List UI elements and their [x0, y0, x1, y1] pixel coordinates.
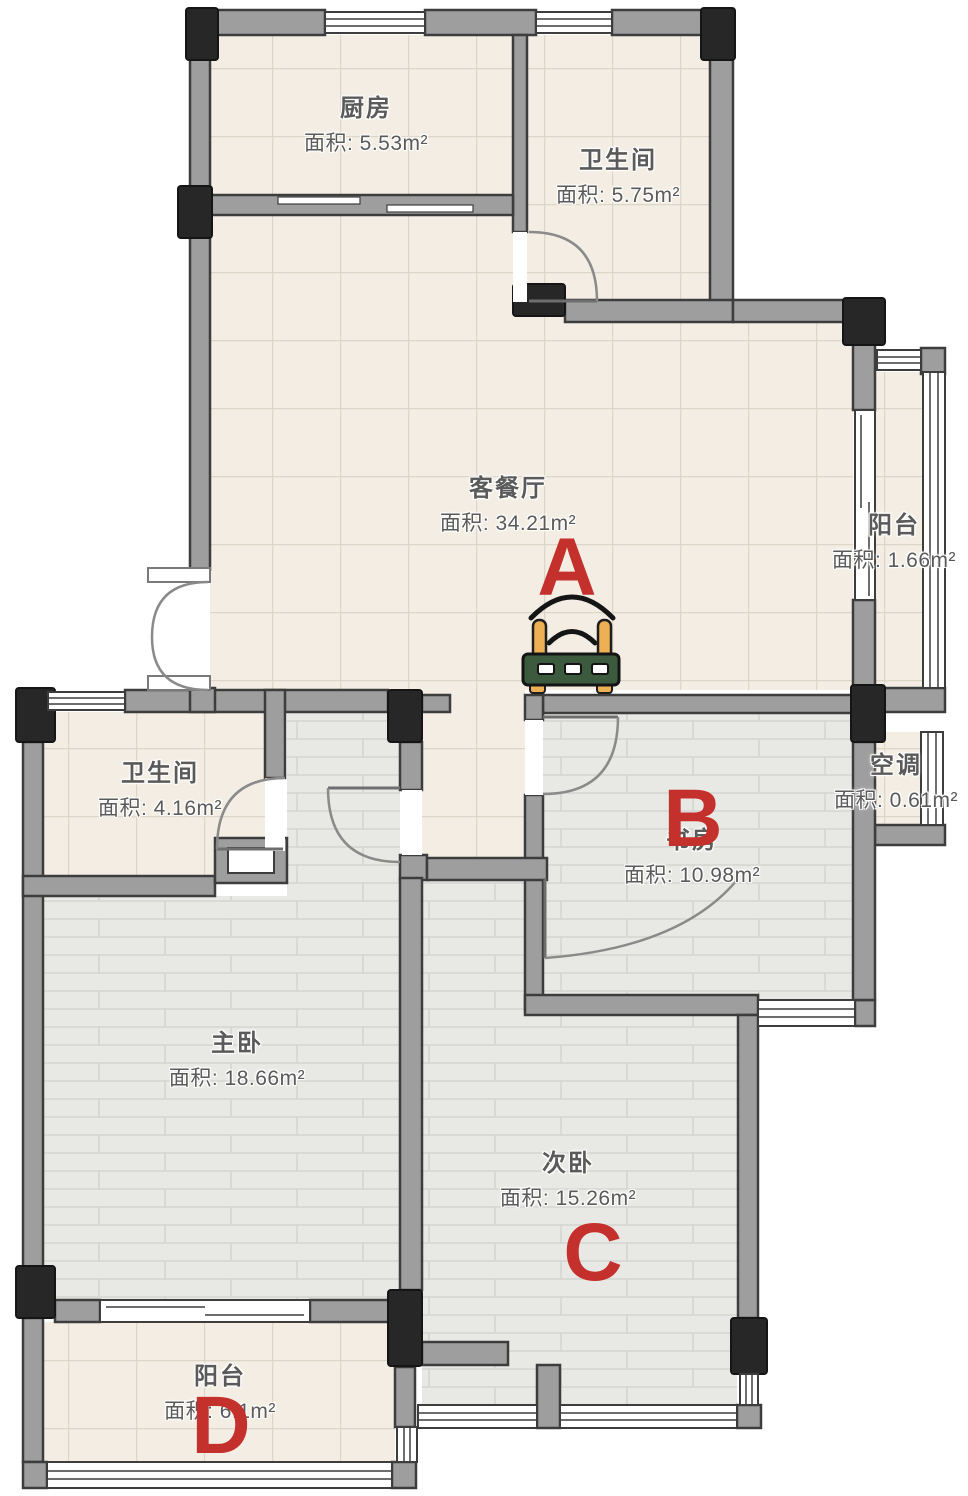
marker-A: A — [537, 527, 596, 609]
floor-tiles — [43, 35, 923, 1462]
room-label-second-bedroom: 次卧 面积: 15.26m² — [500, 1143, 636, 1212]
room-label-air-conditioner: 空调 面积: 0.61m² — [834, 745, 958, 814]
marker-B: B — [663, 778, 722, 860]
floor-plan-drawing — [0, 0, 968, 1496]
room-label-balcony-right: 阳台 面积: 1.66m² — [832, 505, 956, 574]
marker-D: D — [191, 1385, 250, 1467]
room-label-master-bedroom: 主卧 面积: 18.66m² — [169, 1023, 305, 1092]
marker-C: C — [563, 1212, 622, 1294]
room-label-bathroom-lower: 卫生间 面积: 4.16m² — [98, 753, 222, 822]
room-label-kitchen: 厨房 面积: 5.53m² — [304, 88, 428, 157]
kitchen-sliding-door — [278, 197, 360, 204]
room-label-bathroom-top: 卫生间 面积: 5.75m² — [556, 140, 680, 209]
kitchen-sliding-door-panel — [387, 205, 473, 212]
floor-plan: 厨房 面积: 5.53m² 卫生间 面积: 5.75m² 客餐厅 面积: 34.… — [0, 0, 968, 1496]
master-balcony-sliding-door — [100, 1300, 310, 1322]
